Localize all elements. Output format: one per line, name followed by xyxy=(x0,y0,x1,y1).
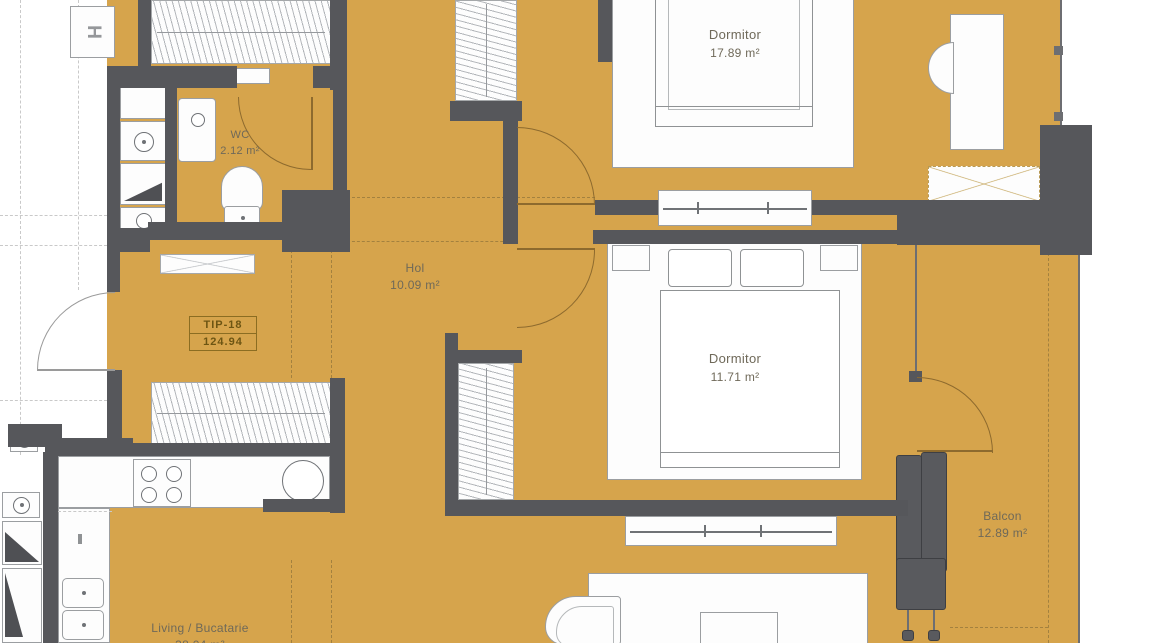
room-label-hol: Hol 10.09 m² xyxy=(370,260,460,295)
neighbour-appliance xyxy=(2,492,40,518)
neighbour-counter xyxy=(2,568,42,643)
wall xyxy=(45,438,133,453)
door-leaf-bedroom1 xyxy=(517,203,595,205)
room-label-dormitor1: Dormitor 17.89 m² xyxy=(660,26,810,62)
balcony-edge-dashed xyxy=(1048,253,1049,643)
wall xyxy=(330,378,345,513)
door-arc-entrance xyxy=(37,292,115,370)
room-name: Balcon xyxy=(955,508,1050,525)
wall xyxy=(43,452,58,643)
laundry-cabinet xyxy=(120,85,166,119)
wardrobe-icon xyxy=(455,0,517,101)
door-leaf-bedroom2 xyxy=(517,248,595,250)
glazing-joint xyxy=(1054,112,1063,121)
console-table xyxy=(160,254,255,274)
wall xyxy=(595,200,660,215)
unit-type: TIP-18 xyxy=(190,317,256,333)
wall xyxy=(263,499,345,512)
faucet-icon xyxy=(78,534,82,544)
desk-icon xyxy=(950,14,1004,150)
wall xyxy=(107,66,237,88)
corridor-grid-line xyxy=(0,245,107,246)
pipe-foot xyxy=(902,630,914,641)
radiator-columns-icon xyxy=(921,452,947,572)
wall xyxy=(598,0,612,62)
kitchen-sink-icon xyxy=(62,610,104,640)
balcony-glazing-line xyxy=(915,243,917,373)
room-name: Dormitor xyxy=(660,26,810,45)
glazing-joint xyxy=(1054,46,1063,55)
wall xyxy=(107,228,150,252)
pipe-foot xyxy=(928,630,940,641)
wall xyxy=(593,230,905,244)
nightstand xyxy=(820,245,858,271)
unit-type-tag: TIP-18 124.94 xyxy=(189,316,257,351)
corridor-grid-line xyxy=(0,215,107,216)
wall xyxy=(165,88,177,222)
wall xyxy=(333,88,347,192)
wall xyxy=(450,101,522,121)
wardrobe-icon xyxy=(458,363,514,500)
beam-line xyxy=(331,250,332,378)
window-icon xyxy=(658,190,812,226)
neighbour-counter xyxy=(2,521,42,565)
washing-machine-icon xyxy=(120,121,166,161)
bed-fold-line xyxy=(660,452,840,453)
room-area: 12.89 m² xyxy=(955,525,1050,542)
door-leaf-wc xyxy=(311,97,313,170)
beam-line xyxy=(347,241,518,242)
beam-line xyxy=(331,560,332,643)
wall xyxy=(138,0,151,68)
wall xyxy=(313,66,347,88)
wall xyxy=(148,222,288,240)
wall-corner xyxy=(1040,125,1092,255)
beam-line xyxy=(291,250,292,378)
wall xyxy=(503,121,518,244)
room-area: 10.09 m² xyxy=(370,277,460,294)
room-label-balcon: Balcon 12.89 m² xyxy=(955,508,1050,543)
wall xyxy=(445,350,522,363)
door-leaf-balcony xyxy=(917,450,993,452)
unit-total-area: 124.94 xyxy=(190,333,256,350)
corridor-grid-line xyxy=(20,0,21,455)
window-icon xyxy=(625,516,837,546)
room-name: Hol xyxy=(370,260,460,277)
laundry-counter xyxy=(120,163,166,205)
wall xyxy=(107,66,120,292)
room-label-wc: WC 2.12 m² xyxy=(195,128,285,160)
room-label-dormitor2: Dormitor 11.71 m² xyxy=(660,350,810,386)
room-name: WC xyxy=(195,128,285,144)
wall xyxy=(810,200,900,215)
door-leaf-entrance xyxy=(37,369,115,371)
elevator-box: H xyxy=(70,6,115,58)
wardrobe-icon xyxy=(151,0,331,64)
radiator-columns-icon xyxy=(896,558,946,610)
room-area: 38.04 m² xyxy=(105,637,295,643)
room-area: 11.71 m² xyxy=(660,369,810,386)
room-label-living: Living / Bucatarie 38.04 m² xyxy=(105,620,295,643)
dresser-icon xyxy=(928,166,1040,202)
stove-icon xyxy=(133,459,191,507)
wall xyxy=(107,370,122,438)
counter-edge-line xyxy=(58,511,112,512)
sofa-inner-line xyxy=(556,606,614,643)
outside-top-right xyxy=(1062,0,1150,125)
floor-plan: H xyxy=(0,0,1150,643)
kitchen-sink-icon xyxy=(62,578,104,608)
room-area: 17.89 m² xyxy=(660,45,810,62)
room-area: 2.12 m² xyxy=(195,144,285,160)
nightstand xyxy=(612,245,650,271)
glazing-line xyxy=(1060,0,1062,127)
bed-fold-line xyxy=(655,106,813,107)
wall xyxy=(445,500,908,516)
wall-pillar xyxy=(282,190,350,252)
coffee-table-icon xyxy=(700,612,778,643)
wardrobe-icon xyxy=(151,382,331,444)
room-name: Living / Bucatarie xyxy=(105,620,295,637)
balcony-edge-dashed xyxy=(950,627,1048,628)
pillow xyxy=(668,249,732,287)
pillow xyxy=(740,249,804,287)
corridor-grid-line xyxy=(0,400,107,401)
round-sink-icon xyxy=(282,460,324,502)
room-name: Dormitor xyxy=(660,350,810,369)
elevator-label: H xyxy=(81,25,103,39)
